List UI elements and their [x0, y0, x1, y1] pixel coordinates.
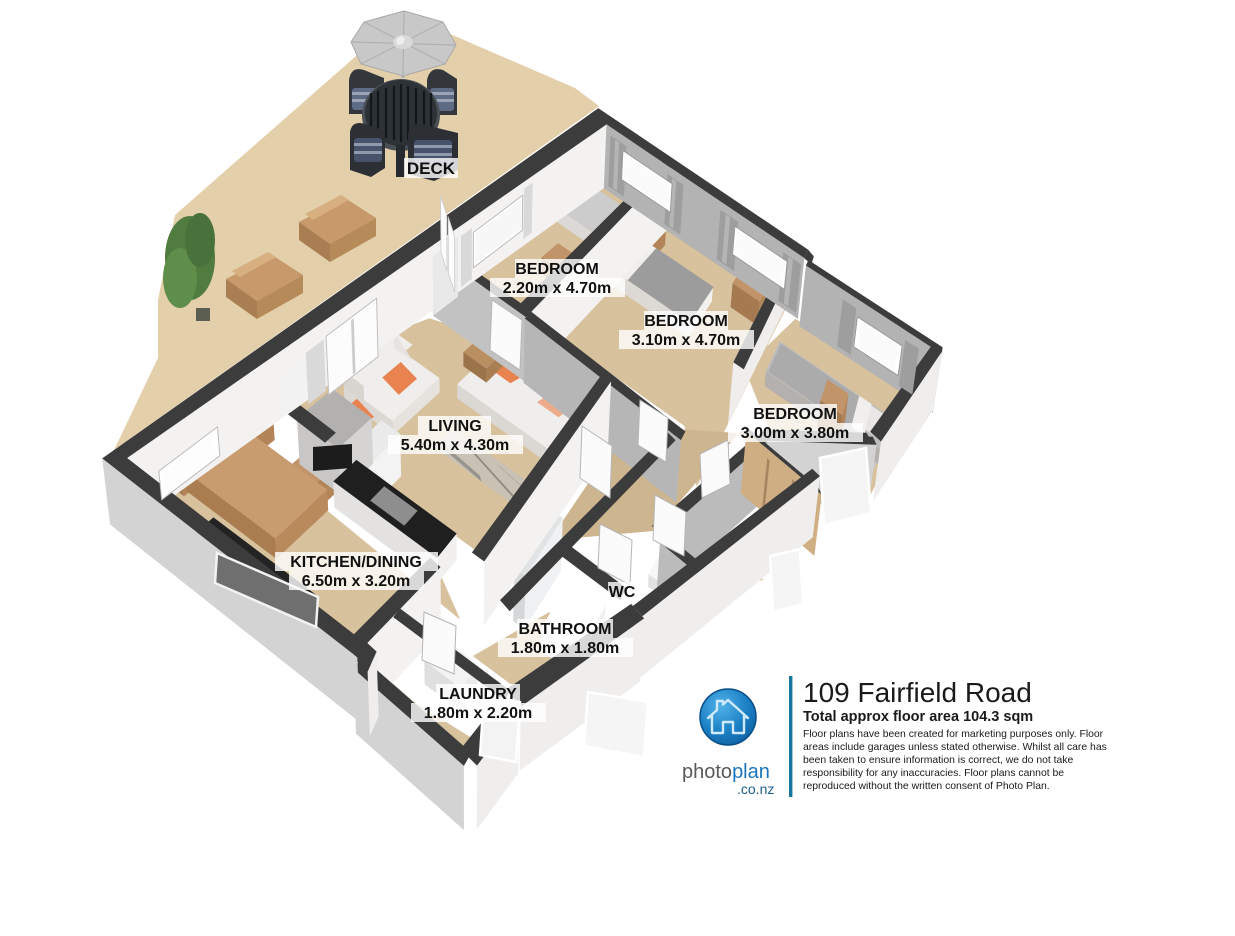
- svg-text:KITCHEN/DINING: KITCHEN/DINING: [290, 554, 422, 571]
- svg-text:BATHROOM: BATHROOM: [518, 621, 611, 638]
- svg-text:1.80m x 2.20m: 1.80m x 2.20m: [424, 705, 533, 722]
- svg-text:WC: WC: [609, 584, 636, 601]
- svg-text:photoplan: photoplan: [682, 761, 770, 783]
- svg-text:responsibility for any inaccur: responsibility for any inaccuracies. Flo…: [803, 768, 1064, 779]
- svg-text:BEDROOM: BEDROOM: [515, 261, 599, 278]
- svg-text:3.00m x 3.80m: 3.00m x 3.80m: [741, 425, 850, 442]
- svg-text:reproduced without the written: reproduced without the written consent o…: [803, 781, 1050, 792]
- svg-text:2.20m x 4.70m: 2.20m x 4.70m: [503, 280, 612, 297]
- svg-text:Floor plans have been created: Floor plans have been created for market…: [803, 729, 1104, 740]
- svg-text:1.80m x 1.80m: 1.80m x 1.80m: [511, 640, 620, 657]
- svg-text:BEDROOM: BEDROOM: [644, 313, 728, 330]
- svg-text:109 Fairfield Road: 109 Fairfield Road: [803, 677, 1032, 708]
- svg-text:BEDROOM: BEDROOM: [753, 406, 837, 423]
- svg-text:6.50m x 3.20m: 6.50m x 3.20m: [302, 573, 411, 590]
- svg-text:.co.nz: .co.nz: [737, 781, 774, 797]
- svg-text:5.40m x 4.30m: 5.40m x 4.30m: [401, 437, 510, 454]
- svg-text:3.10m x 4.70m: 3.10m x 4.70m: [632, 332, 741, 349]
- svg-text:LIVING: LIVING: [428, 418, 481, 435]
- svg-text:DECK: DECK: [407, 159, 456, 178]
- svg-text:areas include garages unless s: areas include garages unless stated othe…: [803, 742, 1107, 753]
- svg-text:LAUNDRY: LAUNDRY: [439, 686, 517, 703]
- svg-text:been taken to ensure informati: been taken to ensure information is corr…: [803, 755, 1074, 766]
- svg-text:Total approx floor area 104.3: Total approx floor area 104.3 sqm: [803, 709, 1033, 725]
